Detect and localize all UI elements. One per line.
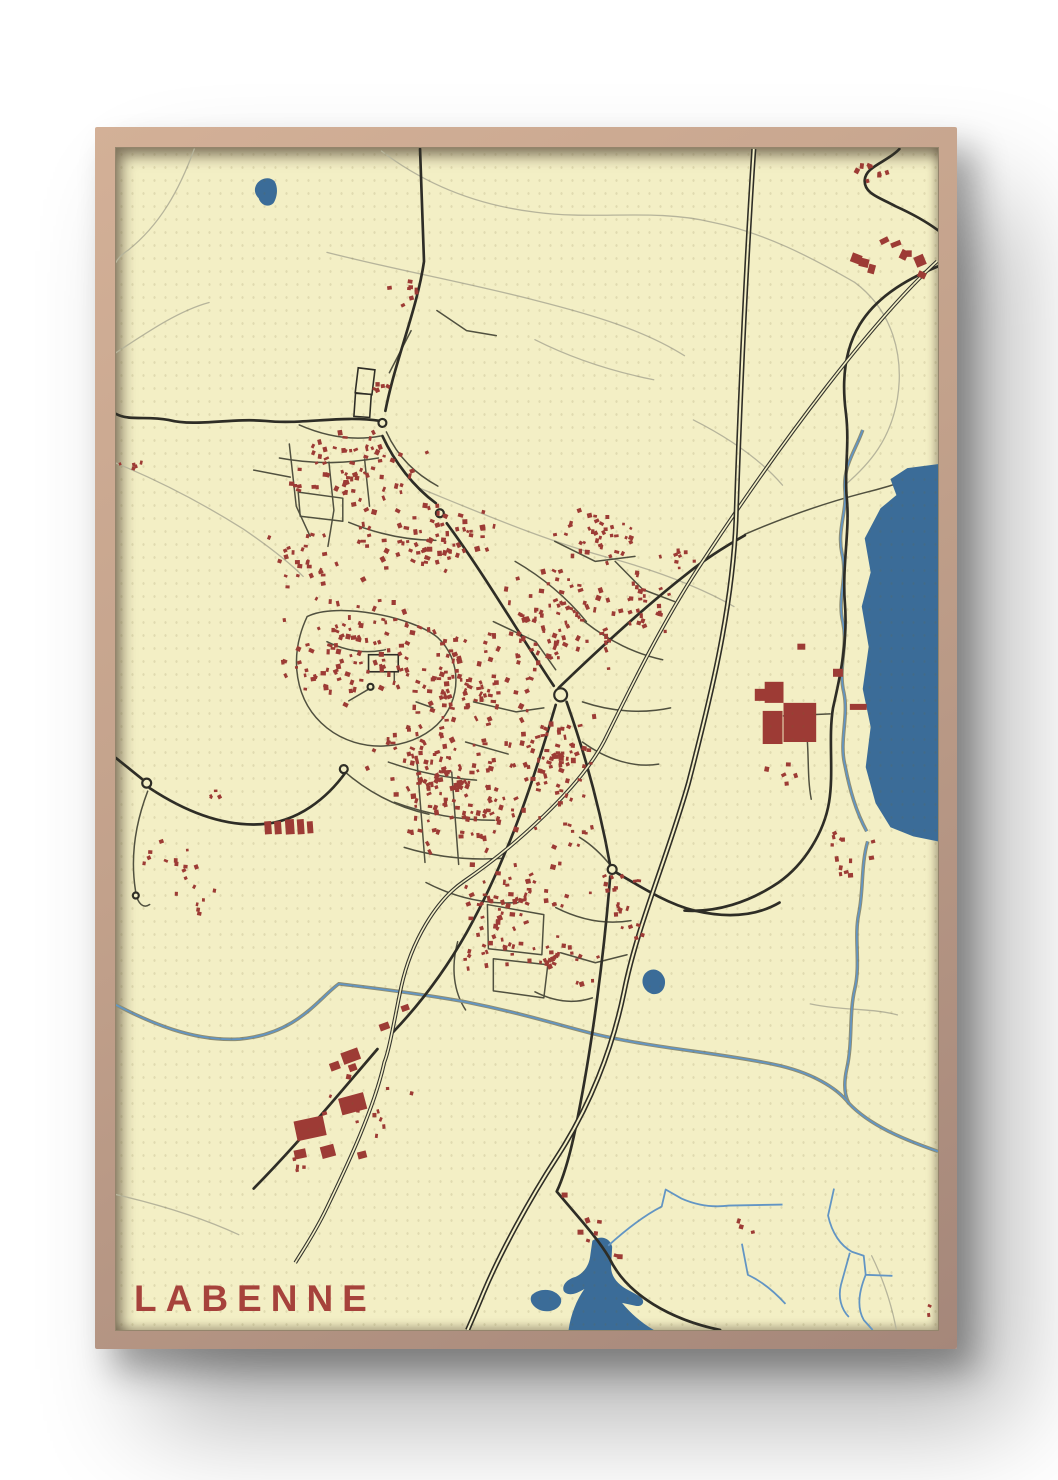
map-title: LABENNE bbox=[134, 1278, 376, 1320]
buildings-layer bbox=[118, 163, 932, 1317]
minor-roads-layer bbox=[133, 311, 932, 1010]
junction-nodes-layer bbox=[133, 368, 617, 899]
page-background: { "poster": { "title": "LABENNE" }, "col… bbox=[0, 0, 1058, 1480]
city-map-svg bbox=[116, 148, 938, 1330]
railway-layer bbox=[295, 261, 937, 1262]
poster-frame: LABENNE bbox=[95, 127, 957, 1349]
highway-layer bbox=[468, 149, 754, 1330]
water-layer bbox=[116, 178, 938, 1330]
map-canvas: LABENNE bbox=[115, 147, 939, 1331]
